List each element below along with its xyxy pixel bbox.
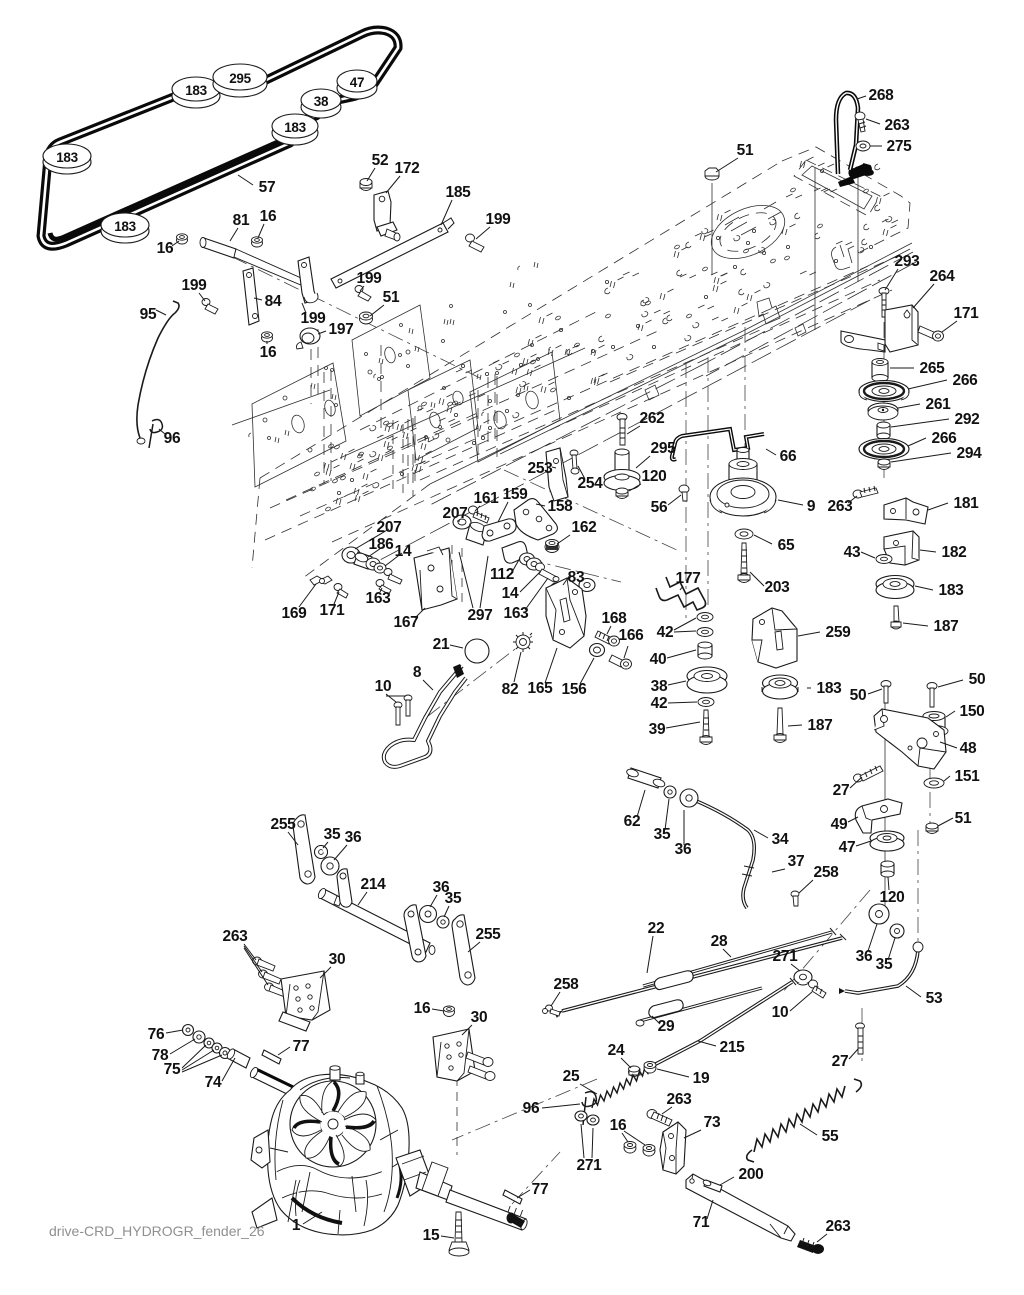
svg-text:95: 95 bbox=[140, 306, 157, 323]
svg-text:53: 53 bbox=[926, 990, 943, 1007]
svg-text:30: 30 bbox=[329, 951, 346, 968]
svg-text:37: 37 bbox=[788, 853, 805, 870]
svg-text:36: 36 bbox=[675, 841, 692, 858]
svg-text:50: 50 bbox=[850, 687, 867, 704]
svg-text:297: 297 bbox=[468, 607, 493, 624]
svg-text:172: 172 bbox=[395, 160, 420, 177]
svg-text:263: 263 bbox=[885, 117, 911, 134]
svg-text:165: 165 bbox=[528, 680, 554, 697]
svg-text:84: 84 bbox=[265, 293, 282, 310]
svg-text:263: 263 bbox=[667, 1091, 693, 1108]
svg-text:120: 120 bbox=[880, 889, 905, 906]
svg-text:16: 16 bbox=[414, 1000, 431, 1017]
svg-text:183: 183 bbox=[185, 83, 207, 98]
svg-text:263: 263 bbox=[828, 498, 854, 515]
svg-text:183: 183 bbox=[939, 582, 965, 599]
svg-text:207: 207 bbox=[443, 505, 468, 522]
svg-text:25: 25 bbox=[563, 1068, 580, 1085]
svg-text:39: 39 bbox=[649, 721, 666, 738]
svg-text:51: 51 bbox=[737, 142, 754, 159]
svg-text:1: 1 bbox=[292, 1217, 301, 1234]
svg-text:151: 151 bbox=[955, 768, 981, 785]
svg-text:47: 47 bbox=[350, 75, 364, 90]
svg-text:42: 42 bbox=[651, 695, 668, 712]
svg-text:294: 294 bbox=[957, 445, 983, 462]
svg-text:52: 52 bbox=[372, 152, 389, 169]
svg-text:112: 112 bbox=[490, 566, 514, 583]
svg-text:266: 266 bbox=[953, 372, 979, 389]
svg-text:207: 207 bbox=[377, 519, 402, 536]
svg-text:27: 27 bbox=[832, 1053, 849, 1070]
svg-text:168: 168 bbox=[602, 610, 628, 627]
svg-text:167: 167 bbox=[394, 614, 419, 631]
svg-text:253: 253 bbox=[528, 460, 554, 477]
svg-text:14: 14 bbox=[502, 585, 519, 602]
svg-text:292: 292 bbox=[955, 411, 980, 428]
svg-text:40: 40 bbox=[650, 651, 667, 668]
svg-text:51: 51 bbox=[955, 810, 972, 827]
svg-text:163: 163 bbox=[366, 590, 392, 607]
svg-text:65: 65 bbox=[778, 537, 795, 554]
svg-text:295: 295 bbox=[651, 440, 677, 457]
svg-text:28: 28 bbox=[711, 933, 728, 950]
svg-text:36: 36 bbox=[856, 948, 873, 965]
svg-text:77: 77 bbox=[293, 1038, 310, 1055]
svg-text:47: 47 bbox=[839, 839, 856, 856]
svg-text:263: 263 bbox=[826, 1218, 852, 1235]
svg-text:161: 161 bbox=[474, 490, 500, 507]
svg-text:22: 22 bbox=[648, 920, 665, 937]
svg-text:159: 159 bbox=[503, 486, 529, 503]
svg-text:259: 259 bbox=[826, 624, 852, 641]
svg-text:50: 50 bbox=[969, 671, 986, 688]
svg-text:83: 83 bbox=[568, 569, 585, 586]
svg-text:16: 16 bbox=[260, 344, 277, 361]
svg-text:183: 183 bbox=[284, 120, 306, 135]
svg-text:171: 171 bbox=[320, 602, 346, 619]
svg-text:258: 258 bbox=[814, 864, 840, 881]
svg-text:96: 96 bbox=[164, 430, 181, 447]
svg-text:76: 76 bbox=[148, 1026, 165, 1043]
svg-text:295: 295 bbox=[229, 71, 251, 86]
svg-text:182: 182 bbox=[942, 544, 967, 561]
svg-text:262: 262 bbox=[640, 410, 665, 427]
svg-text:163: 163 bbox=[504, 605, 530, 622]
svg-text:271: 271 bbox=[577, 1157, 603, 1174]
svg-text:214: 214 bbox=[361, 876, 387, 893]
svg-text:56: 56 bbox=[651, 499, 668, 516]
svg-text:268: 268 bbox=[869, 87, 895, 104]
svg-text:36: 36 bbox=[345, 829, 362, 846]
svg-text:169: 169 bbox=[282, 605, 308, 622]
svg-text:266: 266 bbox=[932, 430, 958, 447]
svg-text:199: 199 bbox=[357, 270, 383, 287]
svg-text:197: 197 bbox=[329, 321, 354, 338]
svg-text:9: 9 bbox=[807, 498, 816, 515]
svg-text:261: 261 bbox=[926, 396, 952, 413]
svg-text:177: 177 bbox=[676, 570, 701, 587]
svg-text:48: 48 bbox=[960, 740, 977, 757]
svg-text:199: 199 bbox=[301, 310, 327, 327]
svg-text:183: 183 bbox=[114, 219, 136, 234]
svg-text:150: 150 bbox=[960, 703, 985, 720]
svg-text:57: 57 bbox=[259, 179, 276, 196]
svg-text:166: 166 bbox=[619, 627, 645, 644]
svg-text:74: 74 bbox=[205, 1074, 222, 1091]
svg-text:16: 16 bbox=[157, 240, 174, 257]
svg-text:255: 255 bbox=[271, 816, 297, 833]
svg-text:8: 8 bbox=[413, 664, 422, 681]
svg-text:263: 263 bbox=[223, 928, 249, 945]
svg-text:43: 43 bbox=[844, 544, 861, 561]
svg-text:183: 183 bbox=[817, 680, 843, 697]
svg-text:187: 187 bbox=[934, 618, 959, 635]
svg-text:14: 14 bbox=[395, 543, 412, 560]
svg-text:187: 187 bbox=[808, 717, 833, 734]
svg-text:75: 75 bbox=[164, 1061, 181, 1078]
svg-text:29: 29 bbox=[658, 1018, 675, 1035]
svg-text:35: 35 bbox=[876, 956, 893, 973]
svg-text:10: 10 bbox=[375, 678, 392, 695]
svg-text:199: 199 bbox=[182, 277, 208, 294]
svg-text:34: 34 bbox=[772, 831, 789, 848]
svg-text:215: 215 bbox=[720, 1039, 746, 1056]
svg-text:181: 181 bbox=[954, 495, 980, 512]
svg-text:15: 15 bbox=[423, 1227, 440, 1244]
svg-text:156: 156 bbox=[562, 681, 588, 698]
svg-text:96: 96 bbox=[523, 1100, 540, 1117]
svg-text:254: 254 bbox=[578, 475, 604, 492]
svg-text:38: 38 bbox=[651, 678, 668, 695]
svg-text:200: 200 bbox=[739, 1166, 764, 1183]
svg-text:35: 35 bbox=[654, 826, 671, 843]
svg-text:271: 271 bbox=[773, 948, 799, 965]
svg-text:275: 275 bbox=[887, 138, 913, 155]
svg-text:30: 30 bbox=[471, 1009, 488, 1026]
svg-text:258: 258 bbox=[554, 976, 580, 993]
svg-text:49: 49 bbox=[831, 816, 848, 833]
svg-text:183: 183 bbox=[56, 150, 78, 165]
svg-text:203: 203 bbox=[765, 579, 791, 596]
svg-text:255: 255 bbox=[476, 926, 502, 943]
svg-text:81: 81 bbox=[233, 212, 250, 229]
svg-text:38: 38 bbox=[314, 94, 329, 109]
svg-text:51: 51 bbox=[383, 289, 400, 306]
svg-text:162: 162 bbox=[572, 519, 597, 536]
svg-text:66: 66 bbox=[780, 448, 797, 465]
svg-text:35: 35 bbox=[445, 890, 462, 907]
svg-text:24: 24 bbox=[608, 1042, 625, 1059]
svg-text:19: 19 bbox=[693, 1070, 710, 1087]
svg-text:21: 21 bbox=[433, 636, 450, 653]
svg-text:293: 293 bbox=[895, 253, 921, 270]
svg-text:35: 35 bbox=[324, 826, 341, 843]
svg-text:drive-CRD_HYDROGR_fender_26: drive-CRD_HYDROGR_fender_26 bbox=[49, 1223, 265, 1239]
svg-text:55: 55 bbox=[822, 1128, 839, 1145]
svg-text:264: 264 bbox=[930, 268, 956, 285]
svg-text:16: 16 bbox=[260, 208, 277, 225]
svg-text:171: 171 bbox=[954, 305, 980, 322]
svg-text:265: 265 bbox=[920, 360, 946, 377]
svg-text:120: 120 bbox=[642, 468, 667, 485]
svg-text:27: 27 bbox=[833, 782, 850, 799]
svg-text:77: 77 bbox=[532, 1181, 549, 1198]
svg-text:186: 186 bbox=[369, 536, 395, 553]
svg-text:10: 10 bbox=[772, 1004, 789, 1021]
svg-text:42: 42 bbox=[657, 624, 674, 641]
svg-text:82: 82 bbox=[502, 681, 519, 698]
svg-text:158: 158 bbox=[548, 498, 574, 515]
svg-text:199: 199 bbox=[486, 211, 512, 228]
svg-text:185: 185 bbox=[446, 184, 472, 201]
svg-text:73: 73 bbox=[704, 1114, 721, 1131]
